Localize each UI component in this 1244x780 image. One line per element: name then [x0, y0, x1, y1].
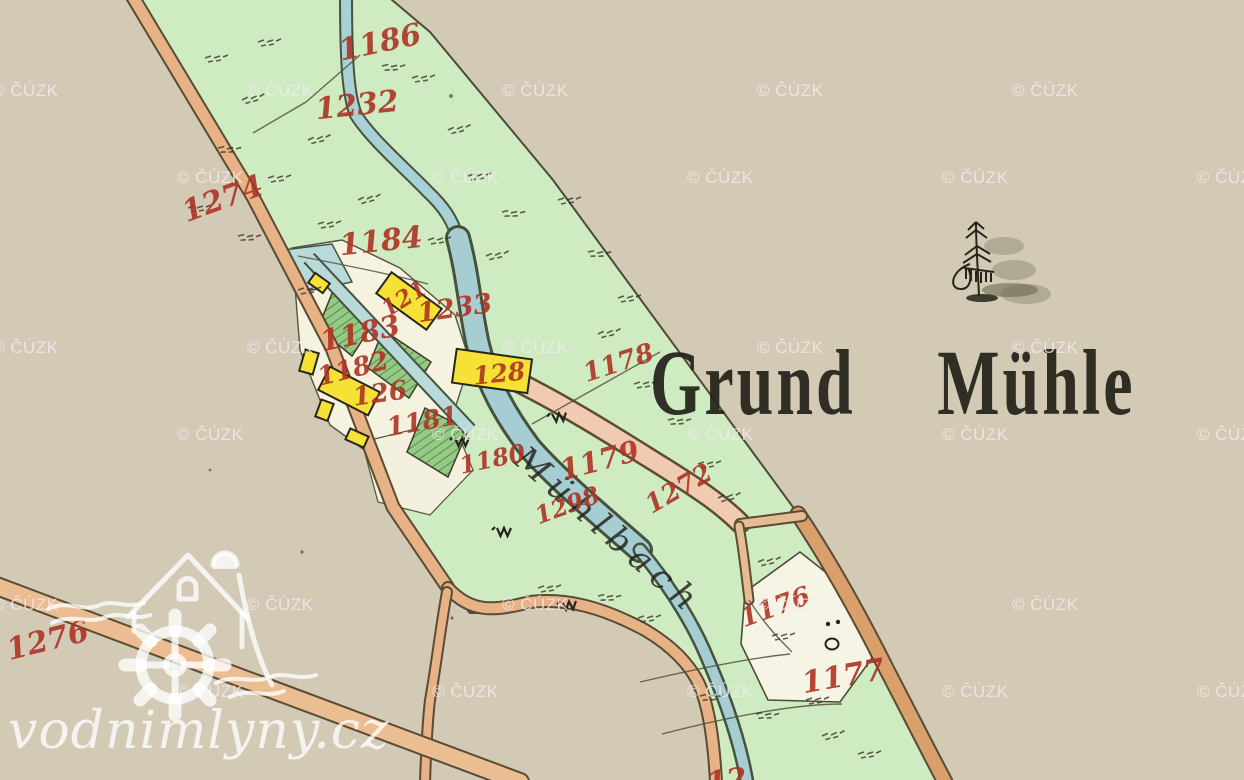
- cuzk-watermark: © ČÚZK: [502, 338, 569, 357]
- cuzk-watermark: © ČÚZK: [942, 682, 1009, 701]
- cuzk-watermark: © ČÚZK: [942, 168, 1009, 187]
- cuzk-watermark: © ČÚZK: [0, 595, 59, 614]
- cuzk-watermark: © ČÚZK: [0, 338, 59, 357]
- logo-mill-wheel: [125, 615, 225, 715]
- cuzk-watermark: © ČÚZK: [432, 168, 499, 187]
- cuzk-watermark: © ČÚZK: [687, 425, 754, 444]
- cuzk-watermark: © ČÚZK: [177, 425, 244, 444]
- cuzk-watermark: © ČÚZK: [247, 595, 314, 614]
- cuzk-watermark: © ČÚZK: [1012, 338, 1079, 357]
- cuzk-watermark: © ČÚZK: [247, 81, 314, 100]
- cuzk-watermark: © ČÚZK: [687, 682, 754, 701]
- cuzk-watermark: © ČÚZK: [432, 425, 499, 444]
- parcel-label-128: 128: [472, 356, 527, 390]
- cuzk-watermark: © ČÚZK: [1197, 682, 1244, 701]
- logo-text: vodnimlyny.cz: [8, 701, 389, 761]
- cuzk-watermark: © ČÚZK: [247, 338, 314, 357]
- cuzk-watermark: © ČÚZK: [687, 168, 754, 187]
- cuzk-watermark: © ČÚZK: [1197, 425, 1244, 444]
- cuzk-watermark: © ČÚZK: [942, 425, 1009, 444]
- map-canvas: Grund Mühle Mühlbach 1186 1232 1274 1184…: [0, 0, 1244, 780]
- cuzk-watermark: © ČÚZK: [502, 81, 569, 100]
- cuzk-watermark: © ČÚZK: [432, 682, 499, 701]
- cuzk-watermark: © ČÚZK: [1012, 595, 1079, 614]
- cuzk-watermark: © ČÚZK: [0, 81, 59, 100]
- cuzk-watermark: © ČÚZK: [1012, 81, 1079, 100]
- cuzk-watermark: © ČÚZK: [502, 595, 569, 614]
- cuzk-watermark: © ČÚZK: [1197, 168, 1244, 187]
- cuzk-watermark: © ČÚZK: [177, 168, 244, 187]
- cuzk-watermark: © ČÚZK: [757, 81, 824, 100]
- cuzk-watermark: © ČÚZK: [757, 595, 824, 614]
- cuzk-watermark: © ČÚZK: [757, 338, 824, 357]
- historical-cadastral-map[interactable]: Grund Mühle Mühlbach 1186 1232 1274 1184…: [0, 0, 1244, 780]
